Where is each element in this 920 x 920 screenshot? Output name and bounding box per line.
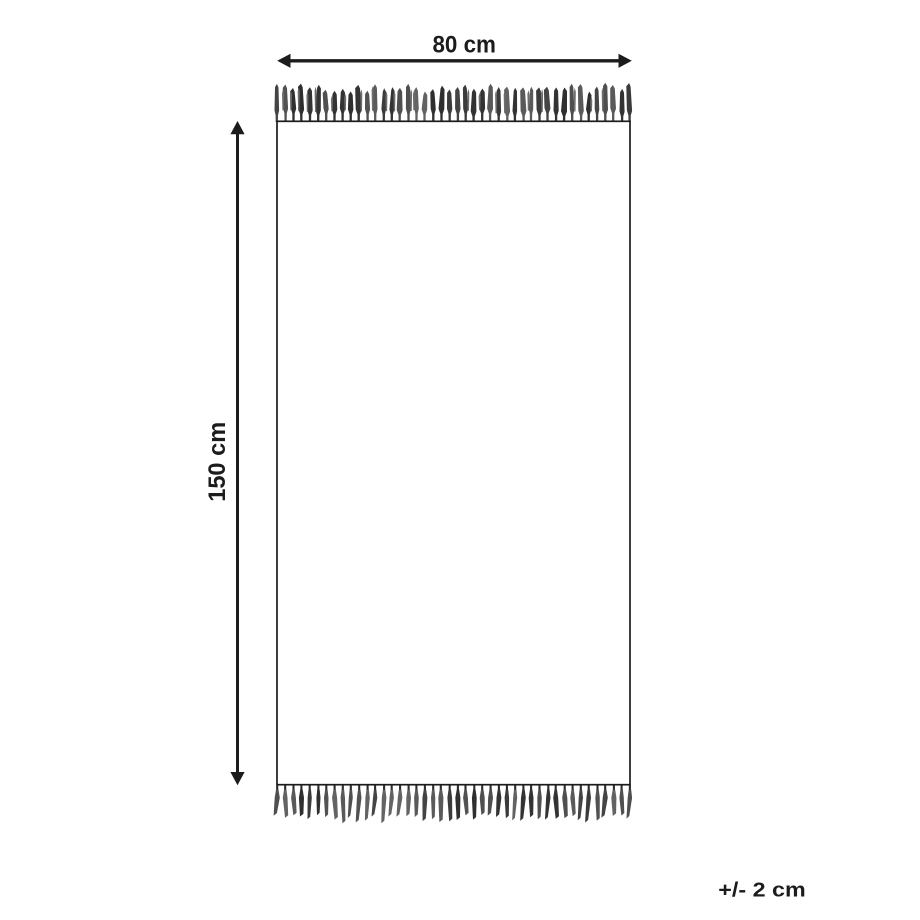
svg-text:80 cm: 80 cm [432, 31, 496, 58]
svg-text:150 cm: 150 cm [204, 422, 231, 502]
svg-text:+/- 2 cm: +/- 2 cm [718, 879, 806, 902]
